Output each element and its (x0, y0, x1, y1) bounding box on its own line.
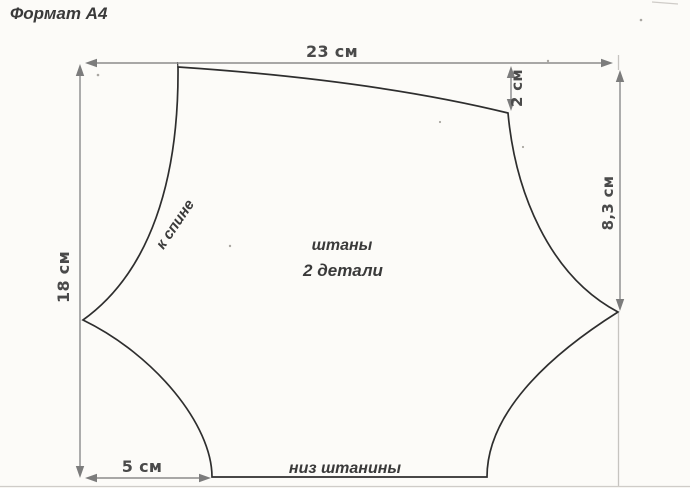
dimension-top-width: 23 см (85, 42, 613, 67)
scan-speck (229, 245, 231, 247)
dimension-hem-inset: 5 см (85, 457, 211, 482)
back-edge-label: к спине (153, 197, 198, 253)
arrowhead-left-icon (85, 59, 97, 67)
pattern-title: штаны (312, 237, 373, 254)
pattern-diagram: 23 см 18 см 2 см 8,3 см 5 см (0, 0, 690, 488)
arrowhead-right-icon (601, 59, 613, 67)
sheet-format-label: Формат А4 (10, 4, 108, 23)
dimension-left-height: 18 см (54, 64, 84, 478)
pattern-subtitle: 2 детали (302, 261, 383, 280)
dim-side-depth-label: 8,3 см (599, 176, 617, 231)
dimension-side-depth: 8,3 см (599, 70, 624, 311)
arrowhead-down-icon (76, 466, 84, 478)
arrowhead-right-icon (199, 474, 211, 482)
arrowhead-down-icon (616, 299, 624, 311)
scan-speck (97, 74, 100, 77)
scan-smudge-top-right (652, 2, 678, 4)
arrowhead-up-icon (616, 70, 624, 82)
pattern-sheet: 23 см 18 см 2 см 8,3 см 5 см (0, 0, 690, 488)
hem-edge-label: низ штанины (289, 460, 402, 477)
scan-speck (640, 19, 643, 22)
dimension-waist-drop: 2 см (507, 66, 526, 111)
arrowhead-up-icon (76, 64, 84, 76)
scan-speck (439, 121, 441, 123)
dim-waist-drop-label: 2 см (508, 69, 526, 107)
scan-speck (547, 60, 549, 62)
dim-hem-inset-label: 5 см (122, 457, 162, 476)
arrowhead-left-icon (85, 474, 97, 482)
scan-speck (522, 146, 524, 148)
dim-top-width-label: 23 см (306, 42, 358, 61)
dim-left-height-label: 18 см (54, 251, 73, 303)
